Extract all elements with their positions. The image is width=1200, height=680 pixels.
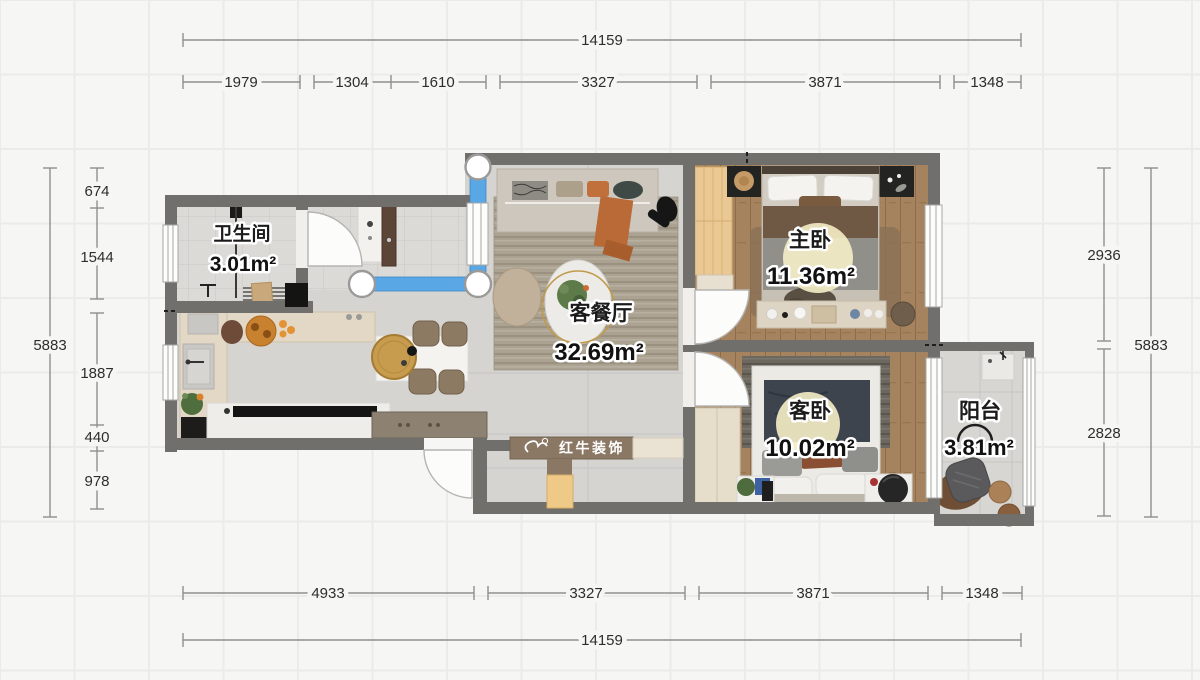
kitchen-plant-flower	[197, 394, 204, 401]
dim-top-seg5: 3871	[808, 74, 841, 91]
room-name-master: 主卧	[789, 229, 831, 252]
shower-corner-block	[285, 283, 308, 307]
dim-bottom-seg3: 3871	[796, 585, 829, 602]
room-area-master: 11.36m²	[767, 263, 855, 290]
wall-top-left-block	[165, 195, 472, 207]
orange	[280, 331, 287, 338]
wall-balcony-bottom	[934, 514, 1034, 526]
shoe-cabinet	[547, 459, 572, 476]
room-area-balcony: 3.81m²	[944, 435, 1014, 460]
wood-cabinet	[547, 475, 573, 508]
wall-top-main	[465, 153, 940, 165]
dim-left-total: 5883	[33, 337, 66, 354]
washer-knob	[988, 359, 992, 363]
nightstand-right	[879, 166, 914, 197]
kitchen-plant-leaf	[182, 393, 188, 399]
table-flower	[583, 285, 589, 291]
room-name-bathroom: 卫生间	[213, 222, 270, 245]
decor-dot	[897, 174, 901, 178]
fixture-knob	[346, 314, 352, 320]
cup	[401, 360, 407, 366]
sliding-door-panel	[382, 206, 396, 266]
dark-frame	[762, 481, 773, 501]
master-window	[925, 205, 942, 307]
balcony-access-window	[926, 358, 942, 498]
dim-top-seg6: 1348	[970, 74, 1003, 91]
kitchen-window	[163, 345, 178, 400]
dim-left-seg3: 1887	[80, 365, 113, 382]
dim-bottom-seg2: 3327	[569, 585, 602, 602]
sink-faucet-base	[186, 360, 191, 365]
bathroom-door-gap	[296, 210, 308, 268]
sofa	[497, 169, 658, 232]
room-area-second: 10.02m²	[765, 435, 854, 462]
speaker	[224, 408, 230, 414]
dim-top-seg1: 1979	[224, 74, 257, 91]
room-area-living: 32.69m²	[554, 339, 643, 366]
dining-table	[372, 335, 416, 379]
wall-bottom-main	[473, 502, 940, 514]
dresser-box	[812, 306, 836, 323]
room-area-bathroom: 3.01m²	[210, 253, 277, 276]
dining-chair	[413, 321, 439, 346]
orange	[279, 320, 287, 328]
dim-left-seg5: 978	[84, 473, 109, 490]
dim-top-seg4: 3327	[581, 74, 614, 91]
fruit	[251, 323, 259, 331]
zebra-pillow	[512, 181, 548, 200]
entry-bench	[633, 438, 683, 458]
table-plant-leaf	[559, 284, 569, 294]
teal-pillow	[613, 181, 643, 199]
master-headboard	[762, 166, 879, 174]
dining-chair	[439, 370, 464, 394]
room-name-living: 客餐厅	[570, 301, 633, 325]
column-marker	[465, 271, 491, 297]
second-door-gap	[683, 352, 695, 407]
vanity-drain	[368, 236, 372, 240]
decor-dot	[888, 178, 893, 183]
counter-mat	[188, 314, 218, 334]
fruit	[263, 330, 271, 338]
sideboard-handle	[406, 423, 410, 427]
dresser-plate	[767, 309, 778, 320]
orange-pillow	[587, 181, 609, 197]
wall-balcony-top	[940, 342, 1034, 351]
black-planter	[181, 417, 207, 440]
dim-top-seg2: 1304	[335, 74, 368, 91]
dining-chair	[409, 369, 436, 394]
vanity-faucet	[367, 221, 373, 227]
white-pillow	[816, 474, 868, 496]
bathroom-window	[163, 225, 178, 282]
dim-left-seg1: 674	[84, 183, 109, 200]
dim-top-seg3: 1610	[421, 74, 454, 91]
floor-plan-drawing: 红牛装饰 卫生间 3.01m² 客餐厅 32.69m² 主卧 11.36m² 客…	[0, 0, 1200, 680]
orange	[287, 326, 295, 334]
living-window	[467, 203, 488, 265]
dresser-item-blue	[850, 309, 860, 319]
sideboard-handle	[428, 423, 432, 427]
dim-bottom-total: 14159	[581, 632, 623, 649]
room-name-second: 客卧	[789, 399, 831, 423]
dresser-item	[782, 312, 788, 318]
wall-bedroom-divider	[695, 340, 928, 352]
dresser-item	[864, 309, 872, 317]
door-handle	[387, 238, 391, 242]
round-chair	[878, 474, 908, 504]
woven-tray-center	[739, 176, 749, 186]
dim-top-total: 14159	[581, 32, 623, 49]
dim-right-seg1: 2936	[1087, 247, 1120, 264]
stool	[891, 302, 915, 326]
fixture-knob	[356, 314, 362, 320]
dim-left-seg2: 1544	[80, 249, 113, 266]
dresser-item	[875, 310, 883, 318]
master-door-gap	[683, 288, 695, 345]
dining-chair	[442, 322, 467, 346]
floor-plan-canvas: 红牛装饰 卫生间 3.01m² 客餐厅 32.69m² 主卧 11.36m² 客…	[0, 0, 1200, 680]
sideboard-handle	[398, 423, 402, 427]
plant	[737, 478, 755, 496]
entry-door-swing	[424, 450, 472, 498]
column-marker	[349, 271, 375, 297]
fruit-bowl	[246, 316, 276, 346]
watermark-brand-text: 红牛装饰	[559, 440, 625, 456]
sideboard-handle	[436, 423, 440, 427]
dim-bottom-seg4: 1348	[965, 585, 998, 602]
tv-screen	[233, 406, 377, 417]
dim-left-seg4: 440	[84, 429, 109, 446]
beanbag	[493, 268, 541, 326]
entry-door-gap	[424, 438, 473, 450]
kitchen-sink-basin	[187, 349, 210, 384]
dim-bottom-seg1: 4933	[311, 585, 344, 602]
side-table	[989, 481, 1011, 503]
washer-cabinet	[982, 354, 1014, 380]
column-marker	[466, 155, 491, 180]
balcony-window	[1023, 358, 1035, 506]
dim-right-total: 5883	[1134, 337, 1167, 354]
dresser-plate	[794, 307, 806, 319]
dim-right-seg2: 2828	[1087, 425, 1120, 442]
tan-pillow	[556, 181, 583, 197]
room-name-balcony: 阳台	[959, 399, 1001, 423]
red-book	[870, 478, 878, 486]
canister	[221, 320, 243, 344]
kettle	[407, 346, 417, 356]
